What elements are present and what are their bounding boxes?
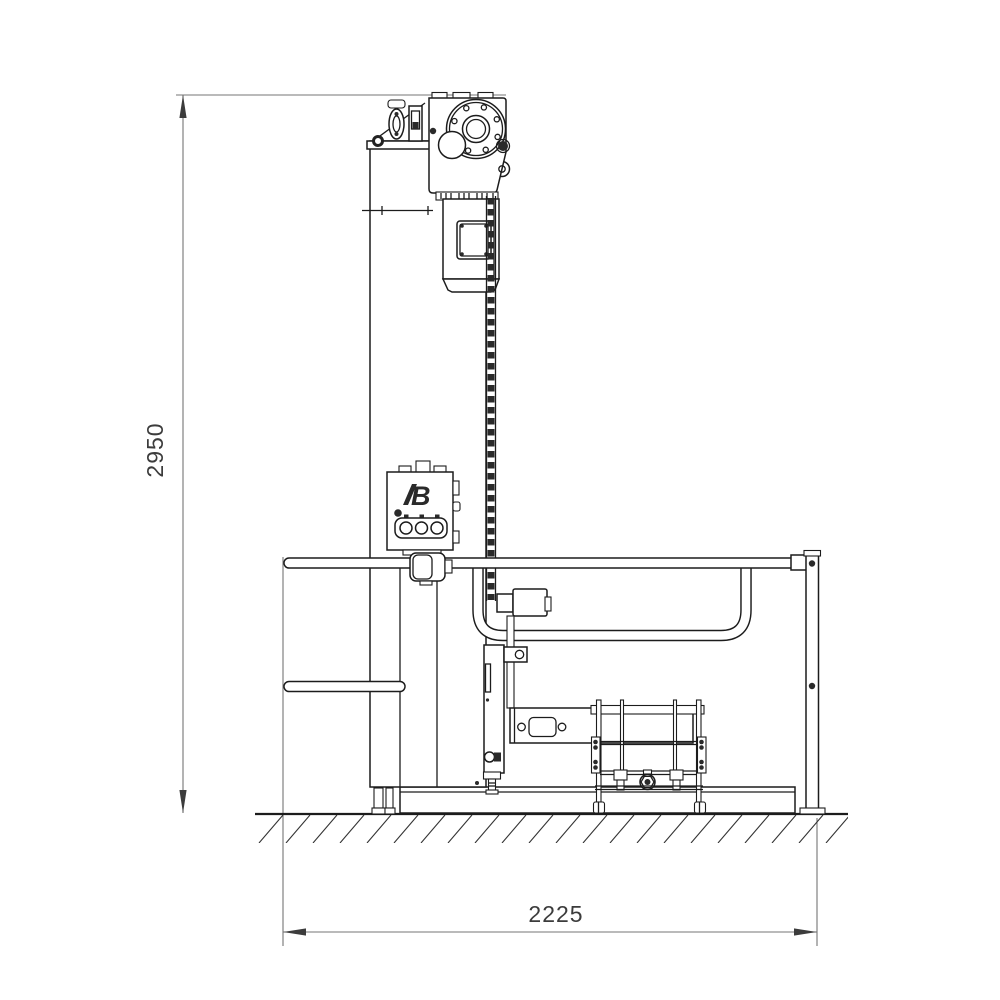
post-bolt-upper [809, 560, 815, 566]
width-arrow-right [794, 928, 817, 935]
rail-connector [791, 555, 807, 570]
height-dimension-label: 2950 [142, 422, 168, 477]
gearbox [429, 93, 510, 194]
width-dimension-label: 2225 [528, 901, 583, 927]
carriage-frame [484, 645, 504, 773]
ground [255, 814, 848, 843]
gearbox-dot [430, 128, 436, 134]
height-arrow-down [179, 790, 186, 813]
logo-text: B [411, 481, 431, 511]
lift-chain [487, 196, 496, 601]
width-arrow-left [283, 928, 306, 935]
button-panel [395, 515, 447, 539]
column-feet [372, 788, 395, 814]
width-dimension: 2225 [283, 557, 817, 946]
post-bolt-lower [809, 683, 815, 689]
push-button-2 [416, 522, 428, 534]
push-button-3 [431, 522, 443, 534]
ground-hatching [258, 815, 848, 843]
carriage-bracket [504, 647, 527, 662]
trolley-top-frame [591, 706, 704, 715]
technical-drawing-column-lifter: 2950 2225 [0, 0, 1000, 1000]
post-cap [804, 551, 821, 557]
carriage-arm [497, 589, 551, 616]
bracket-cap [388, 100, 405, 108]
height-arrow-up [179, 95, 186, 118]
post-foot [800, 808, 825, 814]
gearbox-lobe [439, 132, 466, 159]
gearbox-bolt [498, 141, 508, 151]
indicator-light [394, 509, 402, 517]
push-button-1 [400, 522, 412, 534]
support-post [791, 551, 825, 815]
post-body [806, 552, 819, 812]
chain-sprocket [374, 137, 383, 146]
